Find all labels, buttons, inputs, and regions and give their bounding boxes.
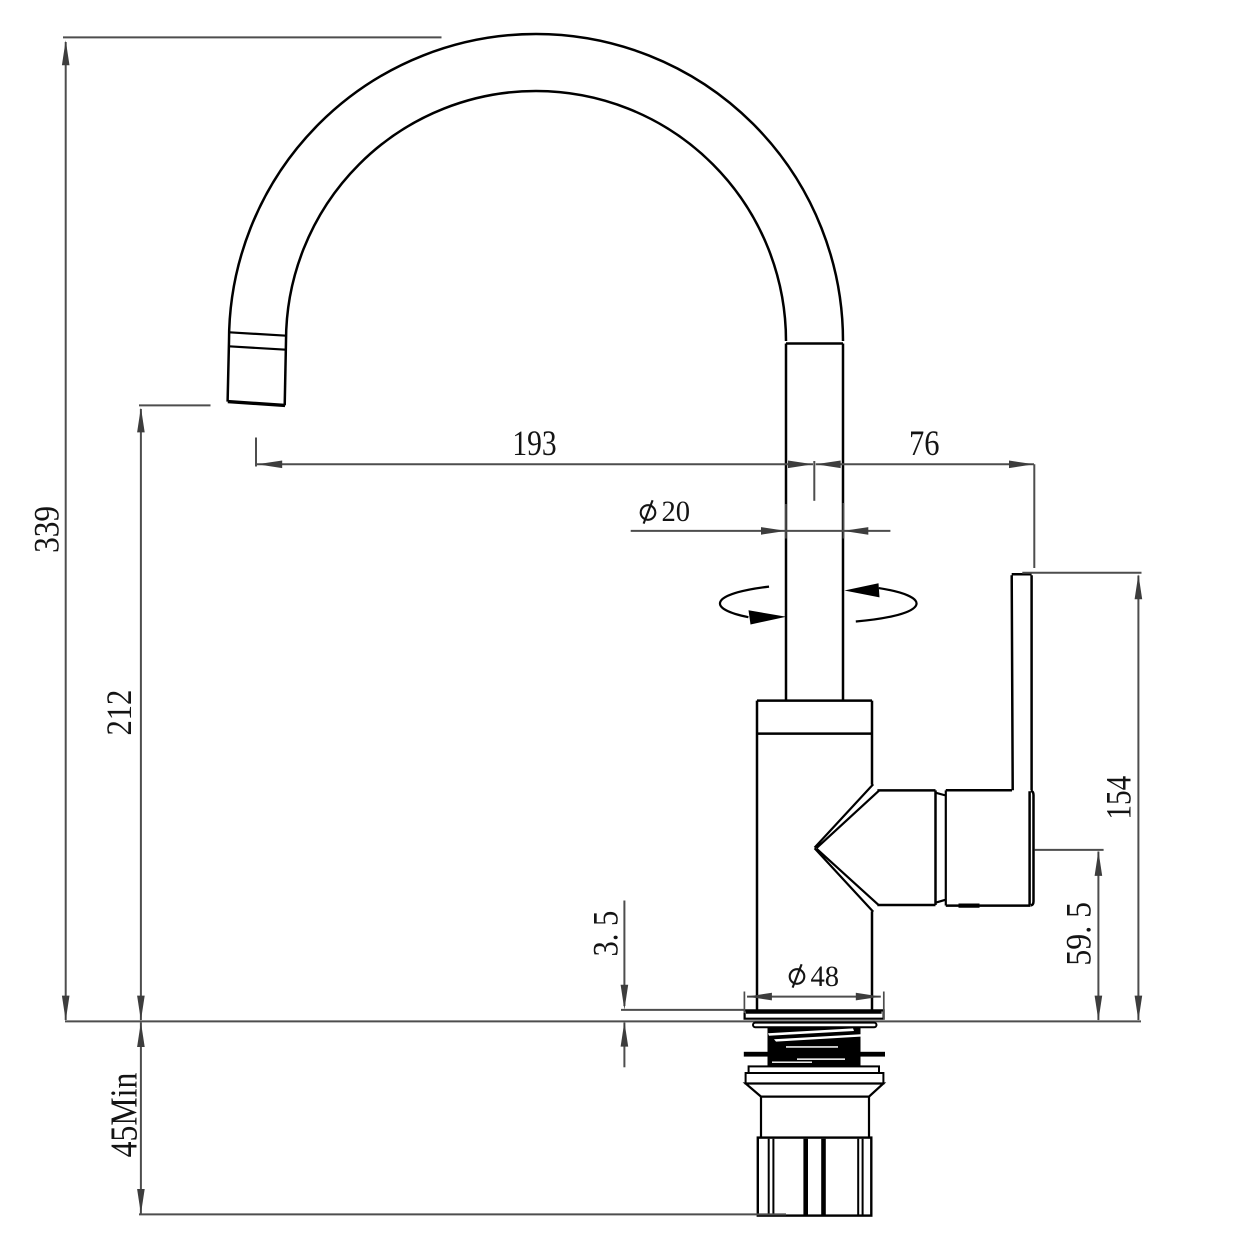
svg-text:59. 5: 59. 5 <box>1059 902 1099 966</box>
svg-text:339: 339 <box>27 506 67 553</box>
svg-text:45Min: 45Min <box>104 1073 146 1158</box>
svg-text:212: 212 <box>99 690 139 736</box>
svg-text:154: 154 <box>1099 776 1139 820</box>
svg-text:48: 48 <box>811 961 840 993</box>
svg-text:76: 76 <box>909 423 940 463</box>
svg-text:20: 20 <box>662 496 691 528</box>
svg-text:3. 5: 3. 5 <box>586 911 626 957</box>
svg-text:193: 193 <box>512 423 556 463</box>
